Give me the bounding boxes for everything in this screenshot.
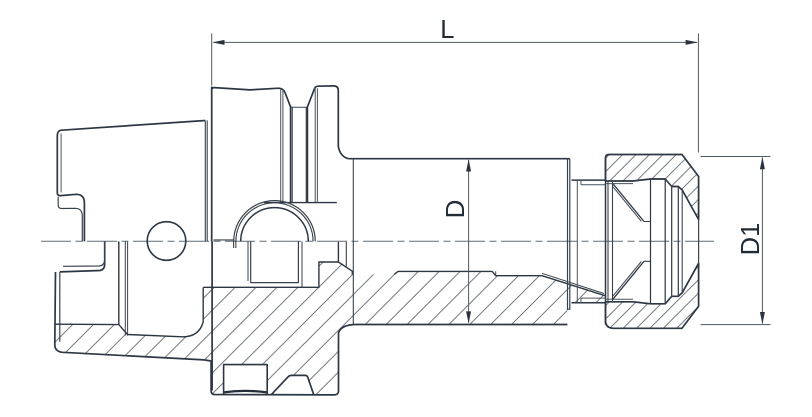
svg-text:L: L — [440, 16, 454, 44]
svg-text:D1: D1 — [737, 223, 765, 256]
svg-text:D: D — [440, 200, 470, 219]
